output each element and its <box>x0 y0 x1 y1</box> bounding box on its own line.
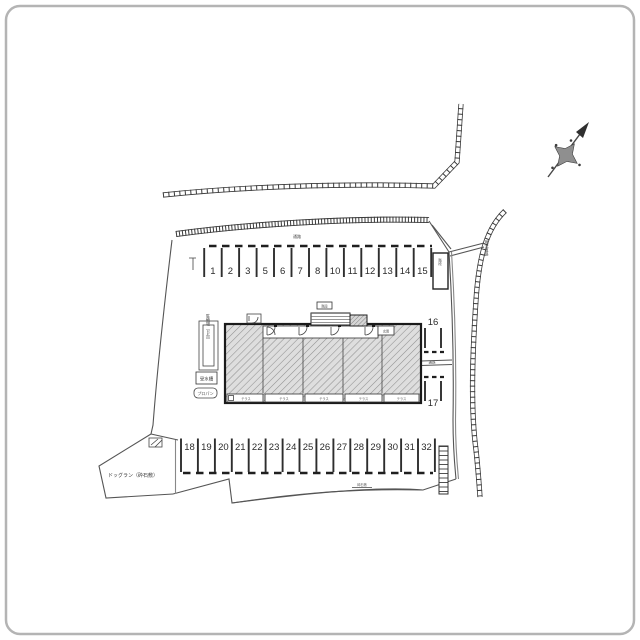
terrace-label: テラス <box>241 396 251 401</box>
parking-space-number: 24 <box>286 442 297 453</box>
terrace-label: テラス <box>279 396 289 401</box>
parking-space-number: 12 <box>365 266 376 277</box>
parking-space-number: 10 <box>330 266 341 277</box>
drive-aisle-mid: 通路 <box>421 360 452 366</box>
parking-space-number: 19 <box>201 442 212 453</box>
stairs-top-label: 階段 <box>321 303 328 308</box>
retaining-wall-top <box>163 104 461 195</box>
parking-space-number: 29 <box>370 442 381 453</box>
parking-space-number: 30 <box>387 442 398 453</box>
parking-space-number: 26 <box>320 442 331 453</box>
bicycle-parking-label: 駐輪場（11台） <box>206 312 211 342</box>
entrance-box: 玄関 <box>378 326 394 335</box>
parking-space-number: 25 <box>303 442 314 453</box>
parking-space-number: 8 <box>315 266 320 277</box>
terrace-label: テラス <box>397 396 407 401</box>
parking-space-17: 17 <box>424 377 444 409</box>
parking-space-number: 23 <box>269 442 280 453</box>
side-stair-box: 階段 <box>433 253 448 289</box>
parking-space-number: 31 <box>404 442 415 453</box>
aisle-label-top: 通路 <box>293 233 301 239</box>
terrace-label: テラス <box>319 396 329 401</box>
bicycle-parking: 駐輪場（11台） <box>199 312 218 370</box>
parking-space-number: 20 <box>218 442 229 453</box>
parking-space-number: 32 <box>421 442 432 453</box>
water-tank-label: 受水槽 <box>200 376 214 383</box>
parking-space-number: 3 <box>245 266 250 277</box>
site-boundary-right <box>449 252 459 479</box>
parking-space-number: 15 <box>417 266 428 277</box>
dog-run-label: ドッグラン（砕石敷） <box>108 472 158 479</box>
gravel-note: 砕石敷 <box>352 482 372 488</box>
propane-box: プロパン <box>194 388 217 398</box>
parking-space-number: 6 <box>280 266 285 277</box>
parking-space-number: 16 <box>428 317 439 328</box>
parking-space-number: 17 <box>428 398 439 409</box>
aisle-label-mid: 通路 <box>429 360 437 365</box>
parking-row-bottom: 181920212223242526272829303132 <box>181 439 435 474</box>
propane-label: プロパン <box>197 390 213 396</box>
water-tank: 受水槽 <box>196 372 217 384</box>
retaining-wall-second <box>176 220 429 234</box>
parking-space-number: 1 <box>210 266 215 277</box>
left-porch-box <box>247 314 261 323</box>
site-plan-page: 1235678101112131415 通路 18192021222324252… <box>0 0 640 640</box>
parking-space-number: 7 <box>298 266 303 277</box>
compass-north-arrow <box>548 122 589 177</box>
stairs-side-label: 階段 <box>437 258 442 267</box>
building-corridor <box>263 326 378 338</box>
driveway-junction-lines <box>429 221 484 256</box>
stair-block: 階段 <box>311 302 367 326</box>
parking-space-number: 13 <box>382 266 393 277</box>
parking-space-number: 11 <box>348 266 358 277</box>
parking-space-number: 14 <box>400 266 411 277</box>
exterior-stair-strip <box>439 446 448 494</box>
parking-space-number: 22 <box>252 442 263 453</box>
parking-space-number: 5 <box>263 266 268 277</box>
site-plan-drawing: 1235678101112131415 通路 18192021222324252… <box>0 0 640 640</box>
svg-text:玄関: 玄関 <box>383 329 389 334</box>
road-right-label: 現況道路 <box>485 240 490 257</box>
svg-text:砕石敷: 砕石敷 <box>357 482 367 487</box>
parking-row-top: 1235678101112131415 <box>204 246 432 277</box>
parking-space-16: 16 <box>424 317 444 352</box>
parking-space-number: 18 <box>184 442 195 453</box>
parking-space-number: 21 <box>235 442 246 453</box>
parking-space-number: 2 <box>228 266 233 277</box>
parking-space-number: 27 <box>337 442 348 453</box>
building: 玄関 テラス テラス テラス テラス テラス <box>225 302 421 403</box>
terrace-label: テラス <box>359 396 369 401</box>
parking-space-number: 28 <box>354 442 365 453</box>
terrace-strips: テラス テラス テラス テラス テラス <box>227 394 419 402</box>
